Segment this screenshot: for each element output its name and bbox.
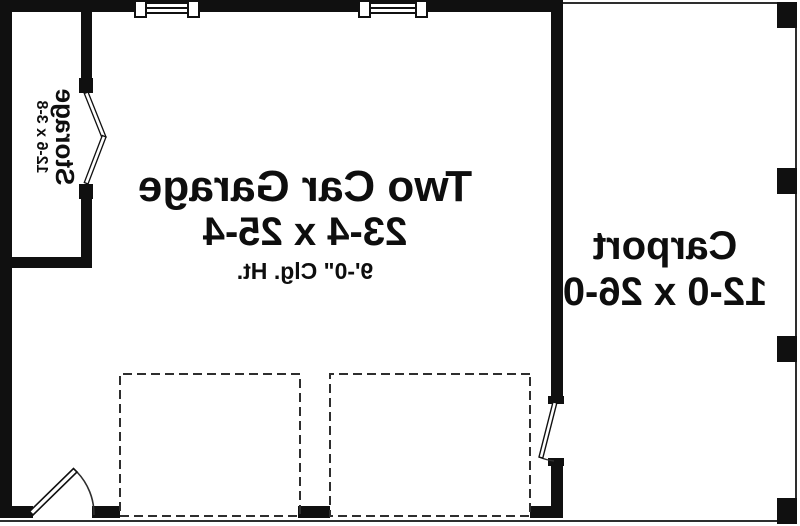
carport-post bbox=[777, 2, 797, 28]
garage-door-bay-dashed bbox=[120, 374, 300, 516]
window-frame-end bbox=[415, 0, 428, 18]
carport-roof-edge-top bbox=[549, 2, 797, 4]
carport-room-dims: 12-0 x 26-0 bbox=[545, 269, 785, 315]
door-jamb bbox=[548, 396, 564, 404]
garage-carport-wall-upper bbox=[551, 0, 563, 398]
window-frame-end bbox=[358, 0, 371, 18]
carport-room-label: Carport 12-0 x 26-0 bbox=[545, 223, 785, 315]
window-symbol bbox=[134, 0, 200, 18]
bifold-jamb bbox=[79, 78, 93, 93]
garage-wall-top bbox=[5, 0, 563, 12]
carport-room-name: Carport bbox=[545, 223, 785, 269]
bottom-wall-segment bbox=[298, 506, 330, 518]
window-glass-line bbox=[142, 7, 192, 9]
carport-post bbox=[777, 336, 797, 362]
window-glass bbox=[364, 2, 422, 14]
storage-room-dims: 12-6 x 3-8 bbox=[31, 62, 51, 212]
window-symbol bbox=[358, 0, 428, 18]
garage-ceiling-note: 9'-0" Clg. Ht. bbox=[105, 254, 505, 288]
storage-room-name: Storage bbox=[51, 62, 79, 212]
bottom-wall-segment bbox=[530, 506, 563, 518]
storage-wall-bottom bbox=[5, 257, 92, 268]
garage-room-dims: 23-4 x 25-4 bbox=[105, 210, 505, 254]
carport-door-leaf bbox=[539, 402, 557, 458]
bottom-wall-segment bbox=[0, 506, 33, 518]
bottom-wall-segment bbox=[92, 506, 120, 518]
entry-door-leaf bbox=[30, 469, 78, 516]
window-glass bbox=[140, 2, 194, 14]
carport-post bbox=[777, 498, 797, 524]
bifold-door-panel bbox=[84, 92, 106, 139]
storage-room-label: Storage 12-6 x 3-8 bbox=[29, 62, 79, 212]
bottom-threshold-line bbox=[0, 520, 797, 522]
window-glass-line bbox=[366, 7, 420, 9]
bifold-door-panel bbox=[84, 136, 106, 185]
door-jamb bbox=[548, 458, 564, 466]
carport-post bbox=[777, 168, 797, 194]
floor-plan-mirrored: Two Car Garage 23-4 x 25-4 9'-0" Clg. Ht… bbox=[0, 0, 800, 526]
storage-wall-lower bbox=[81, 199, 92, 257]
garage-room-label: Two Car Garage 23-4 x 25-4 9'-0" Clg. Ht… bbox=[105, 164, 505, 288]
window-frame-end bbox=[187, 0, 200, 18]
bifold-jamb bbox=[79, 184, 93, 199]
carport-roof-edge-side bbox=[795, 2, 797, 522]
floor-plan-image: Two Car Garage 23-4 x 25-4 9'-0" Clg. Ht… bbox=[0, 0, 800, 526]
storage-wall-upper bbox=[81, 12, 92, 78]
garage-door-bay-dashed bbox=[330, 374, 530, 516]
garage-room-name: Two Car Garage bbox=[105, 164, 505, 210]
window-frame-end bbox=[134, 0, 147, 18]
